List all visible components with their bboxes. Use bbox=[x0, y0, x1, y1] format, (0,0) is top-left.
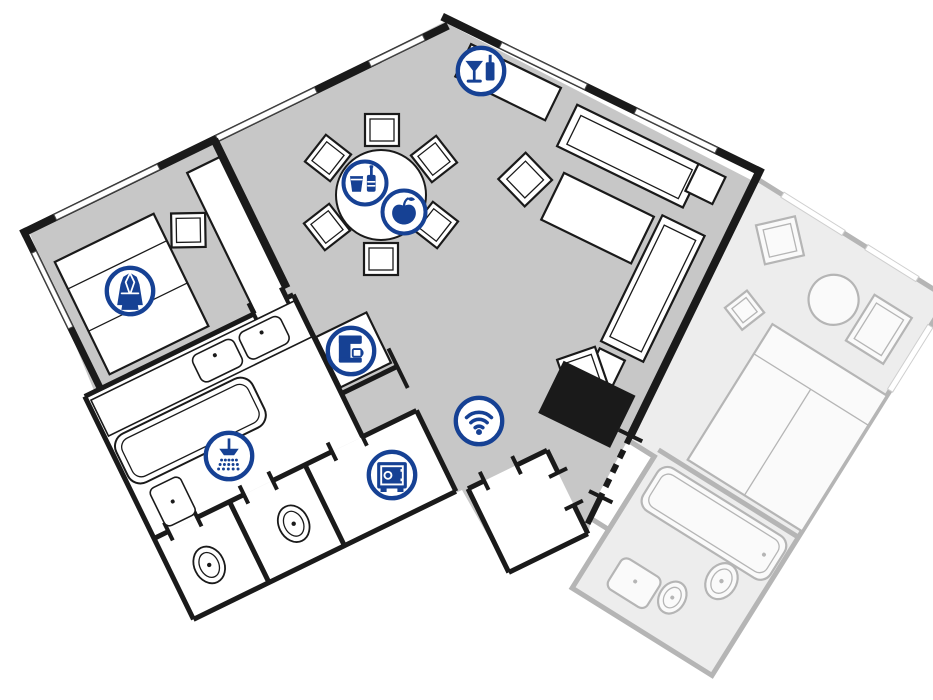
cocktail-bar-icon bbox=[458, 48, 504, 94]
bedroom-chair bbox=[171, 213, 206, 248]
fruit-icon bbox=[383, 191, 426, 234]
floor-plan-canvas bbox=[0, 0, 933, 700]
floor-plan-svg bbox=[0, 0, 933, 700]
dining-chair bbox=[364, 243, 398, 275]
coffee-machine-icon bbox=[328, 328, 374, 374]
bathrobe-icon bbox=[107, 268, 153, 314]
drinks-icon bbox=[344, 162, 387, 205]
shower-icon bbox=[206, 433, 252, 479]
safe-icon bbox=[369, 452, 415, 498]
wifi-icon bbox=[456, 398, 502, 444]
dining-chair bbox=[365, 114, 399, 146]
adjacent-armchair bbox=[756, 216, 804, 264]
